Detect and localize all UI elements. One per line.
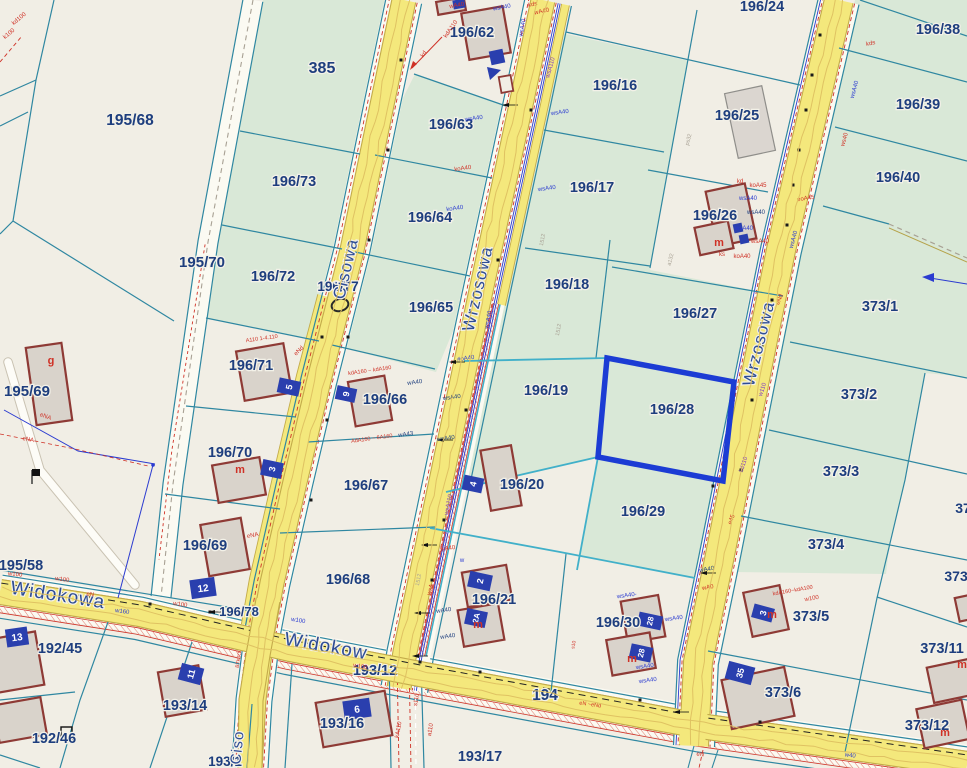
svg-text:37: 37 xyxy=(955,500,967,516)
svg-text:195/70: 195/70 xyxy=(179,254,225,271)
svg-text:196/68: 196/68 xyxy=(326,572,370,588)
svg-text:385: 385 xyxy=(309,60,336,77)
svg-text:196/64: 196/64 xyxy=(408,210,452,226)
svg-text:196/17: 196/17 xyxy=(570,180,614,196)
svg-text:192/46: 192/46 xyxy=(32,731,76,747)
svg-text:196/39: 196/39 xyxy=(896,97,940,113)
svg-text:196/71: 196/71 xyxy=(229,358,273,374)
svg-text:Ciso: Ciso xyxy=(227,730,247,766)
svg-text:m: m xyxy=(473,619,483,631)
svg-text:196/26: 196/26 xyxy=(693,208,737,224)
svg-text:wsA40: wsA40 xyxy=(738,196,758,202)
svg-text:m: m xyxy=(235,464,245,476)
svg-text:373/3: 373/3 xyxy=(823,464,859,480)
svg-text:196/25: 196/25 xyxy=(715,108,759,124)
svg-text:196/19: 196/19 xyxy=(524,383,568,399)
svg-text:196/38: 196/38 xyxy=(916,22,960,38)
svg-text:373/: 373/ xyxy=(944,568,967,584)
svg-text:196/65: 196/65 xyxy=(409,300,453,316)
svg-text:196/72: 196/72 xyxy=(251,269,295,285)
svg-text:196/24: 196/24 xyxy=(740,0,784,15)
svg-text:wsA40: wsA40 xyxy=(746,210,766,216)
svg-text:196/29: 196/29 xyxy=(621,504,665,520)
svg-text:196/27: 196/27 xyxy=(673,306,717,322)
svg-text:196/28: 196/28 xyxy=(650,402,694,418)
svg-text:196/21: 196/21 xyxy=(472,592,516,608)
svg-text:196/20: 196/20 xyxy=(500,477,544,493)
svg-text:ks: ks xyxy=(719,252,725,258)
svg-text:196/40: 196/40 xyxy=(876,170,920,186)
svg-text:193/14: 193/14 xyxy=(163,698,207,714)
svg-text:195/68: 195/68 xyxy=(106,112,154,129)
svg-text:eN: eN xyxy=(86,592,94,599)
svg-text:koA45: koA45 xyxy=(749,183,767,189)
svg-text:195/69: 195/69 xyxy=(4,383,50,400)
svg-text:m: m xyxy=(627,653,637,665)
svg-text:192/45: 192/45 xyxy=(38,641,82,657)
svg-text:g: g xyxy=(48,355,55,367)
svg-text:kd: kd xyxy=(737,179,743,185)
svg-text:196/66: 196/66 xyxy=(363,392,407,408)
svg-text:196/67: 196/67 xyxy=(344,478,388,494)
svg-text:eN: eN xyxy=(696,752,704,759)
svg-text:373/11: 373/11 xyxy=(920,641,964,657)
svg-text:13: 13 xyxy=(11,632,24,645)
svg-text:m: m xyxy=(940,727,950,739)
svg-text:m: m xyxy=(714,237,724,249)
svg-text:373/5: 373/5 xyxy=(793,609,829,625)
svg-text:wsA40: wsA40 xyxy=(734,226,754,232)
svg-text:m: m xyxy=(957,659,967,671)
svg-text:koA40: koA40 xyxy=(733,254,751,260)
svg-text:373/6: 373/6 xyxy=(765,685,801,701)
svg-text:196/30: 196/30 xyxy=(596,615,640,631)
svg-text:196/70: 196/70 xyxy=(208,445,252,461)
svg-text:196/18: 196/18 xyxy=(545,277,589,293)
svg-text:196/16: 196/16 xyxy=(593,78,637,94)
svg-text:373/4: 373/4 xyxy=(808,537,844,553)
svg-text:193/17: 193/17 xyxy=(458,749,502,765)
svg-text:196/73: 196/73 xyxy=(272,174,316,190)
svg-text:373/1: 373/1 xyxy=(862,299,898,315)
svg-text:196/62: 196/62 xyxy=(450,25,494,41)
svg-text:196/78: 196/78 xyxy=(219,604,259,619)
svg-text:wsA40: wsA40 xyxy=(750,239,770,245)
svg-text:193/16: 193/16 xyxy=(320,716,364,732)
svg-text:196/69: 196/69 xyxy=(183,538,227,554)
svg-text:373/2: 373/2 xyxy=(841,387,877,403)
svg-text:m: m xyxy=(767,609,777,621)
svg-text:12: 12 xyxy=(197,583,210,596)
svg-text:w: w xyxy=(459,558,465,564)
